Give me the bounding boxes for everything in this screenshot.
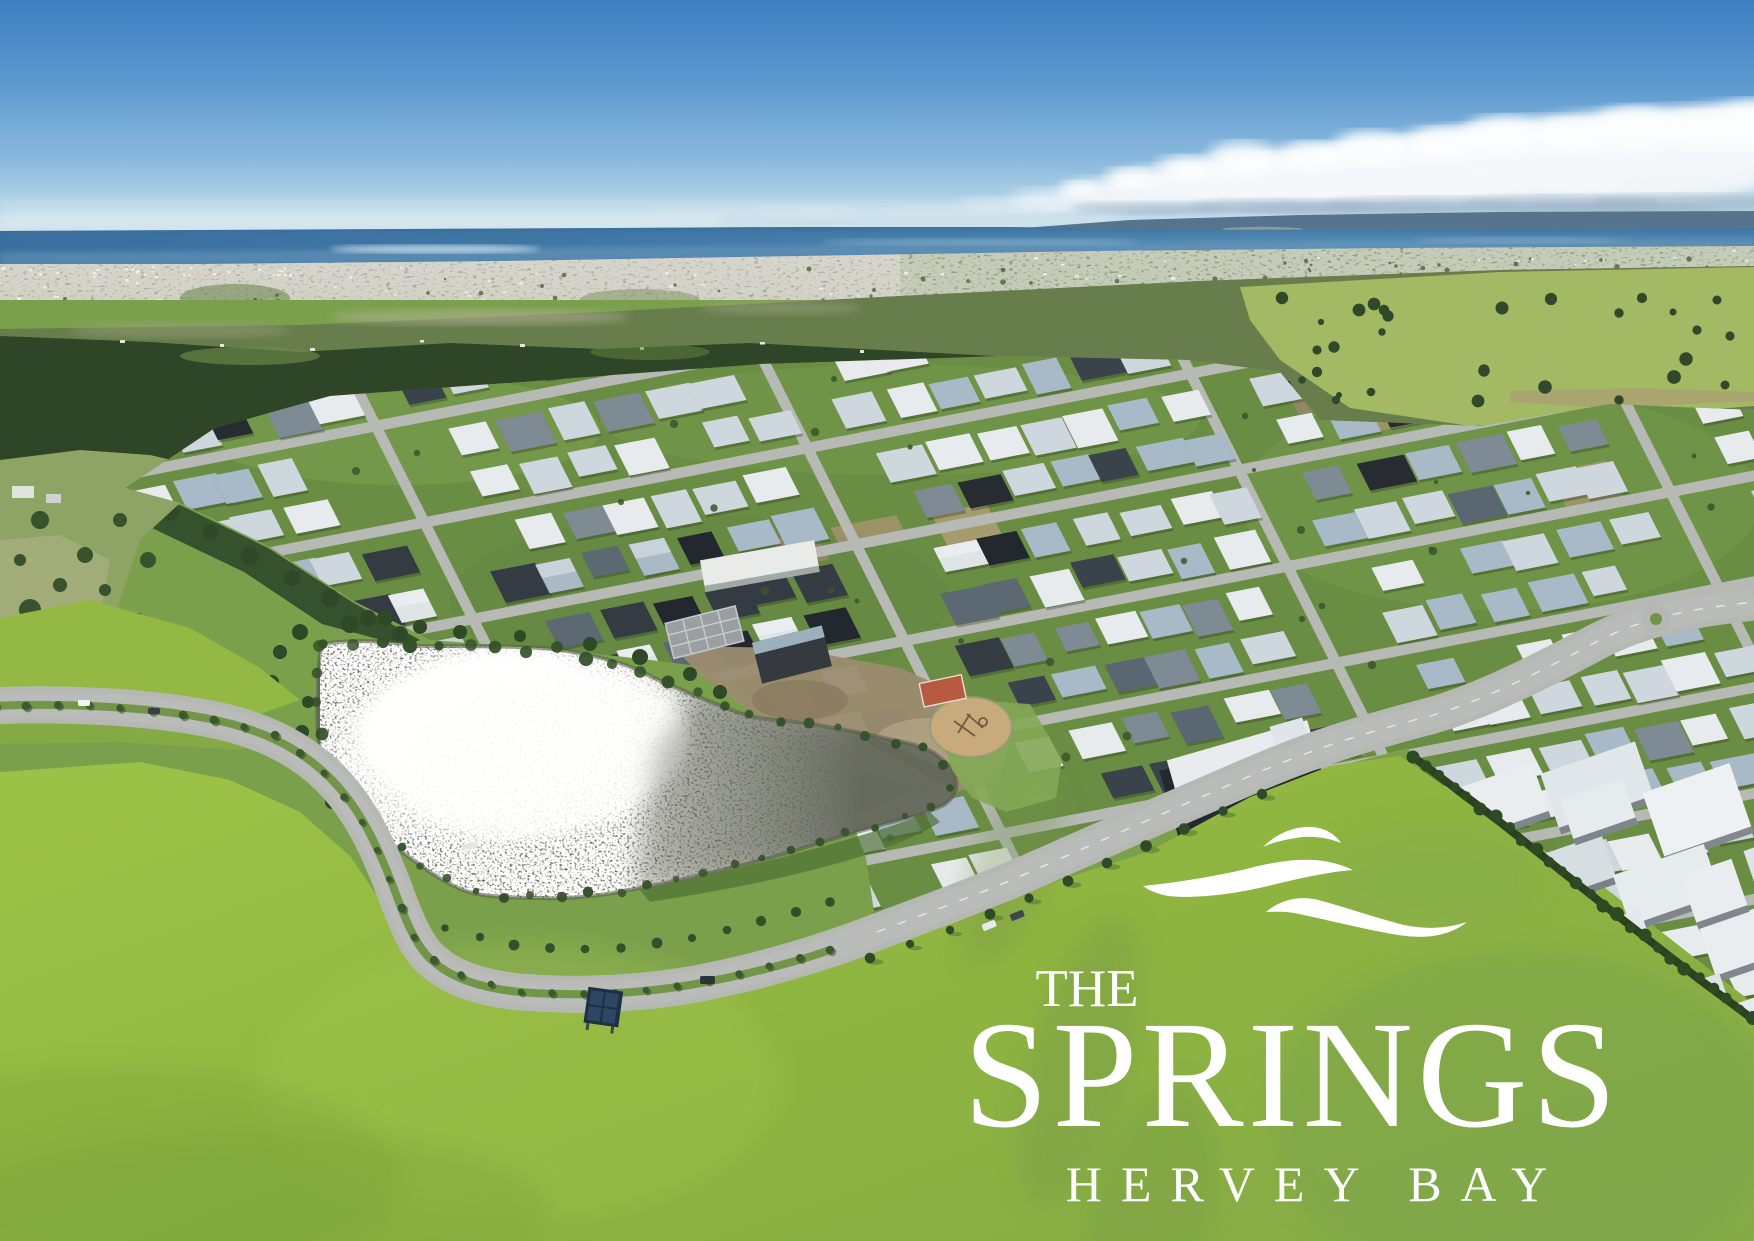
svg-text:HERVEY BAY: HERVEY BAY — [1066, 1156, 1566, 1212]
svg-text:SPRINGS: SPRINGS — [963, 991, 1620, 1160]
